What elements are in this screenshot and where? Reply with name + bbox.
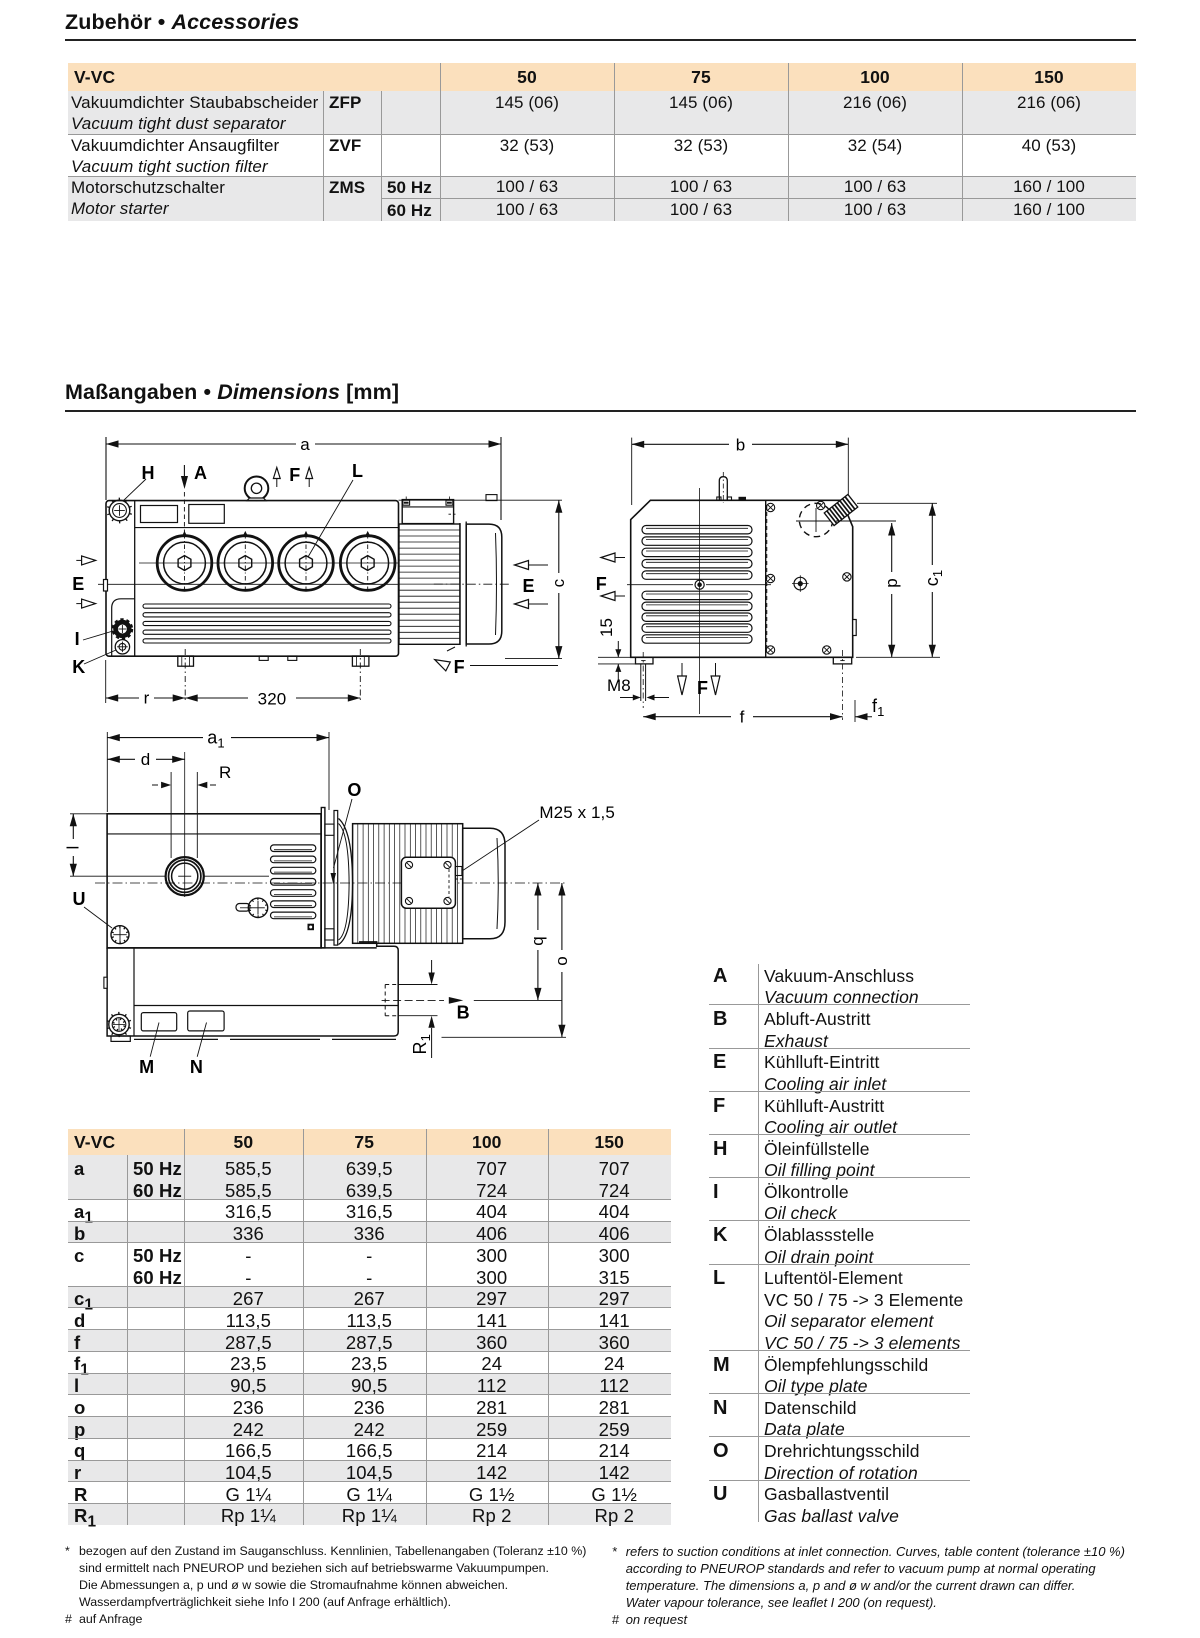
svg-text:f: f bbox=[740, 708, 745, 727]
svg-text:O: O bbox=[347, 780, 361, 800]
svg-text:L: L bbox=[352, 461, 363, 481]
svg-text:r: r bbox=[144, 689, 150, 708]
svg-text:f1: f1 bbox=[872, 696, 884, 719]
svg-text:a: a bbox=[300, 435, 310, 454]
svg-text:a1: a1 bbox=[207, 728, 224, 751]
svg-text:c1: c1 bbox=[922, 570, 945, 586]
svg-text:o: o bbox=[552, 956, 571, 966]
svg-text:M8: M8 bbox=[607, 676, 631, 695]
svg-text:E: E bbox=[72, 574, 84, 594]
svg-text:M25 x 1,5: M25 x 1,5 bbox=[539, 803, 615, 822]
svg-text:B: B bbox=[457, 1003, 470, 1023]
svg-text:q: q bbox=[528, 936, 547, 946]
svg-text:l: l bbox=[64, 846, 83, 850]
svg-text:F: F bbox=[697, 678, 708, 698]
svg-text:M: M bbox=[139, 1057, 154, 1077]
svg-text:c: c bbox=[549, 578, 568, 587]
svg-text:K: K bbox=[72, 657, 85, 677]
svg-text:b: b bbox=[736, 436, 746, 455]
svg-text:H: H bbox=[142, 463, 155, 483]
svg-text:E: E bbox=[523, 576, 535, 596]
svg-text:F: F bbox=[289, 465, 300, 485]
svg-text:I: I bbox=[75, 629, 80, 649]
svg-text:F: F bbox=[454, 657, 465, 677]
svg-text:15: 15 bbox=[597, 618, 616, 637]
svg-text:R: R bbox=[219, 763, 231, 782]
svg-text:d: d bbox=[141, 750, 151, 769]
svg-text:A: A bbox=[194, 463, 207, 483]
svg-text:p: p bbox=[882, 578, 901, 588]
svg-text:F: F bbox=[596, 574, 607, 594]
svg-text:R1: R1 bbox=[410, 1034, 433, 1054]
svg-text:320: 320 bbox=[258, 690, 287, 709]
svg-text:N: N bbox=[190, 1057, 203, 1077]
svg-text:U: U bbox=[73, 889, 86, 909]
